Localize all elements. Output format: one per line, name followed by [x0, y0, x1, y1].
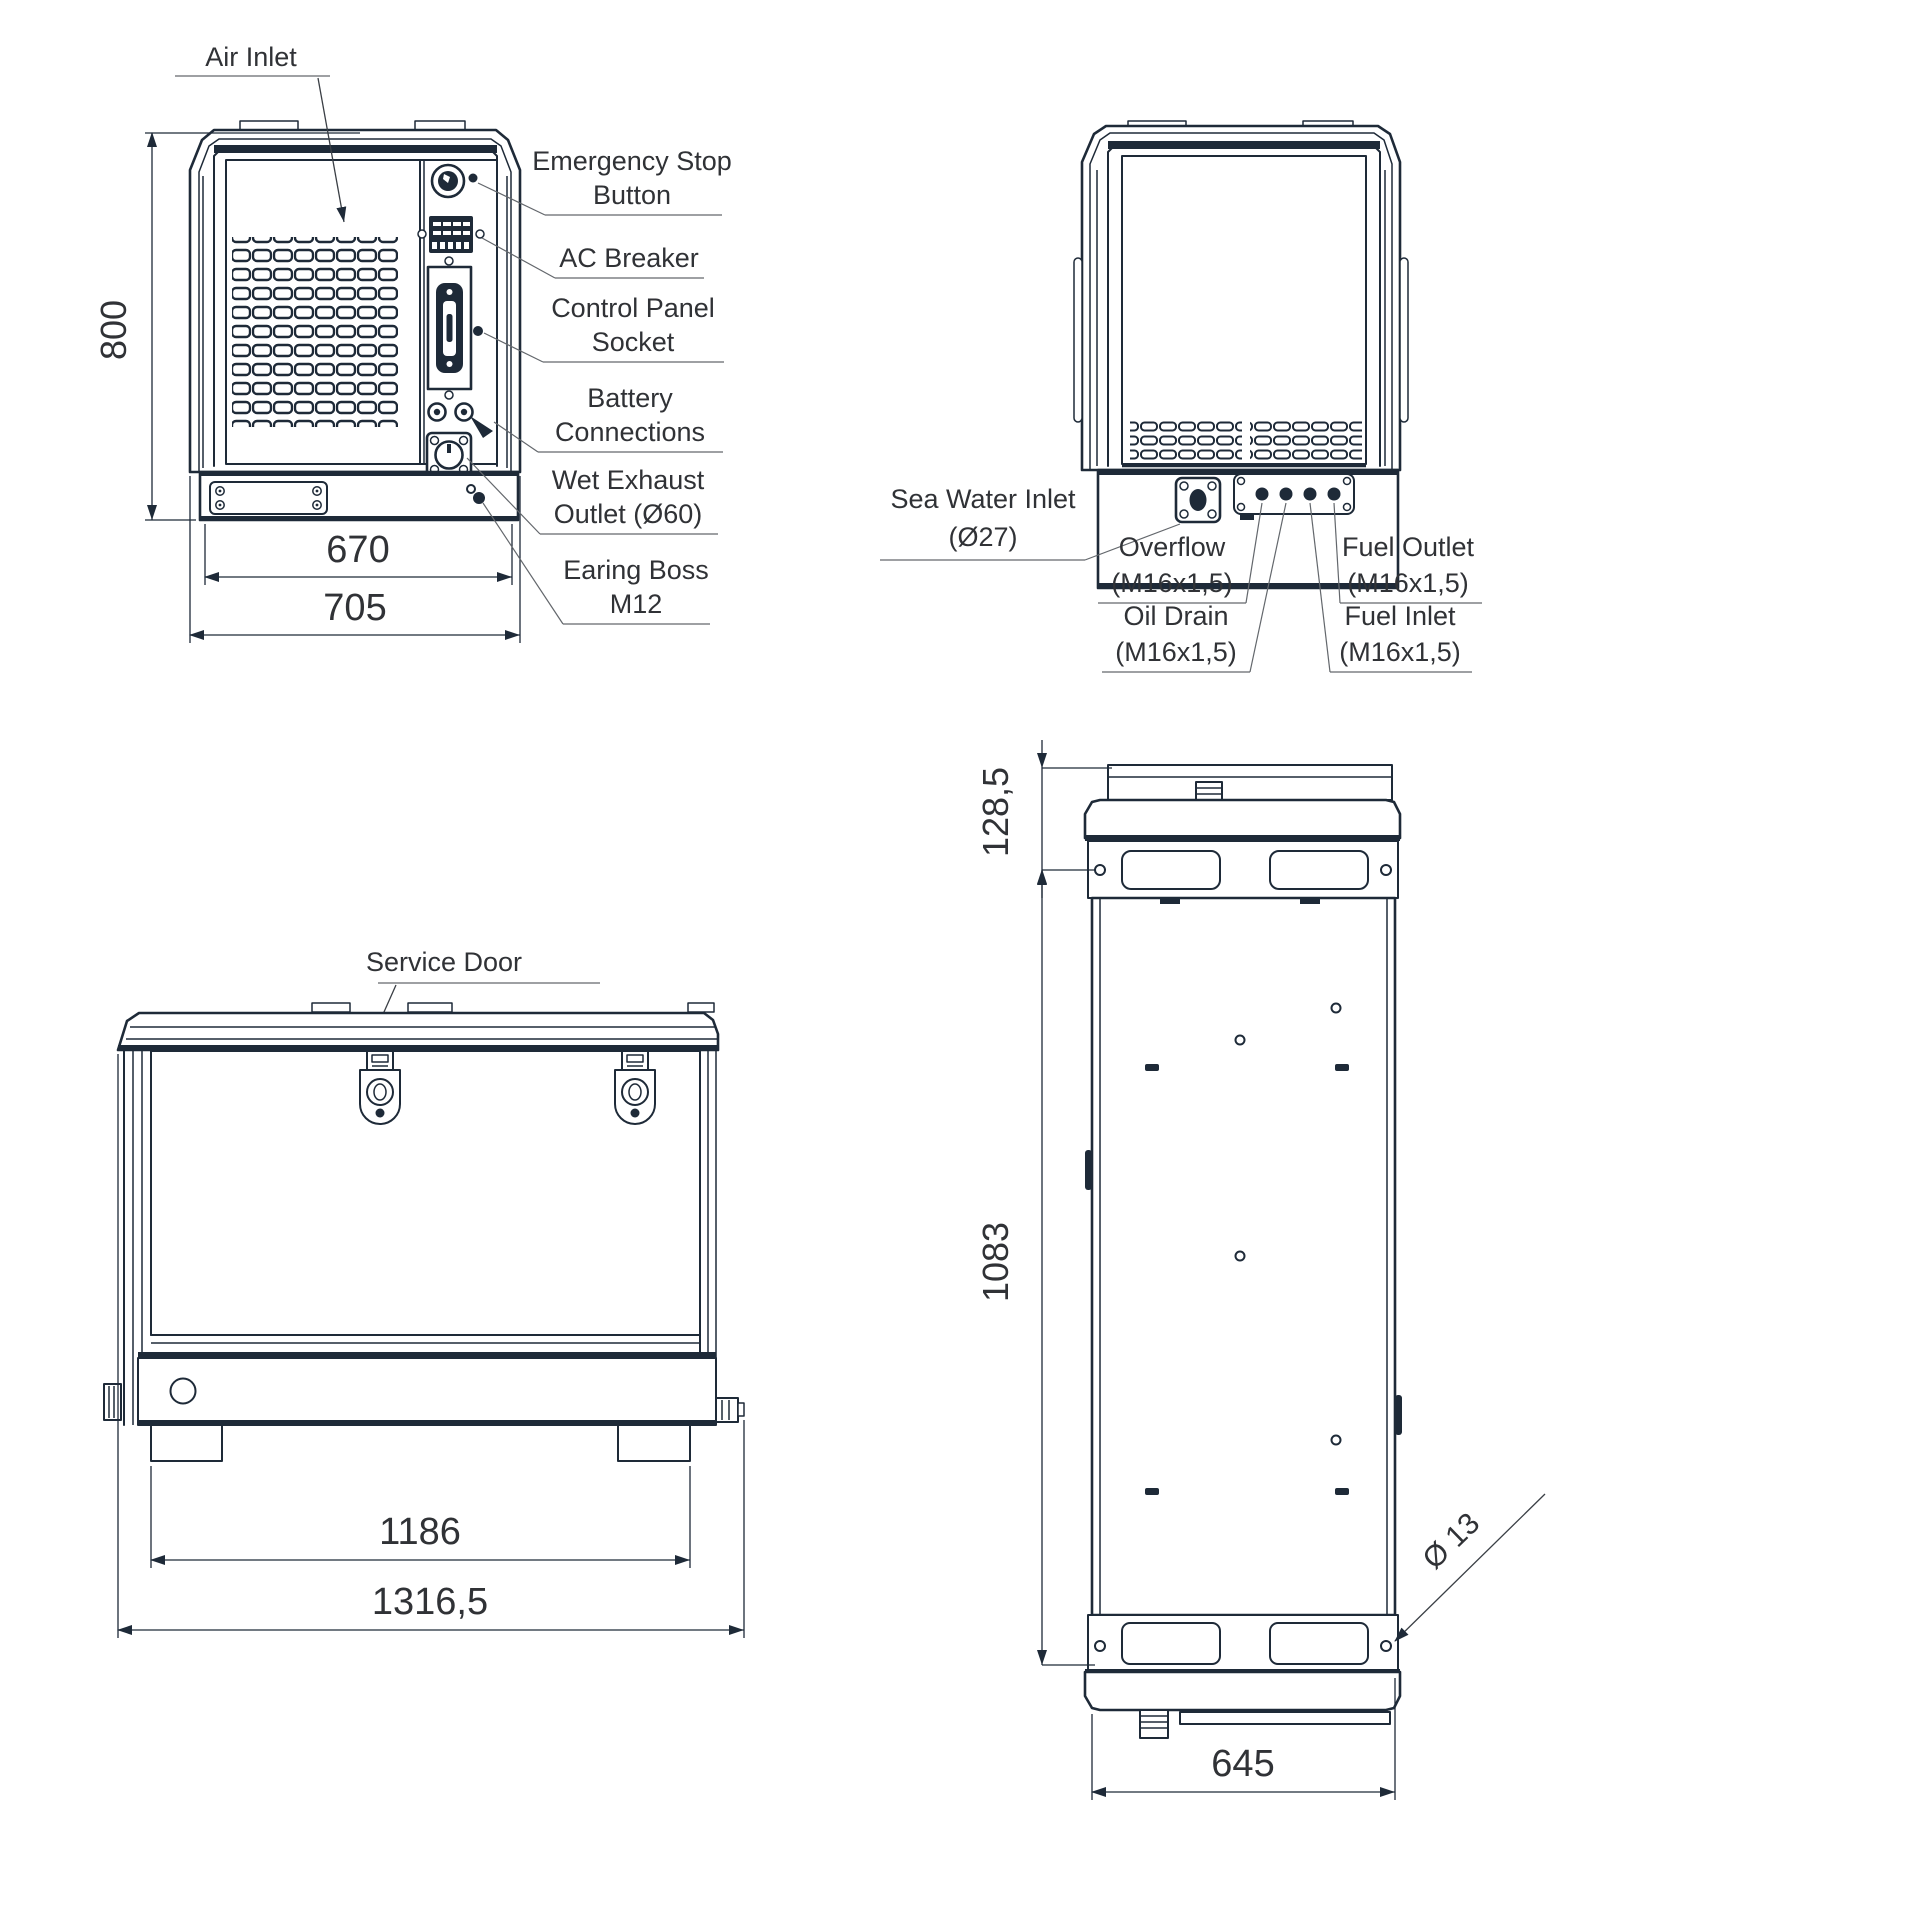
svg-text:Wet Exhaust: Wet Exhaust: [552, 465, 705, 495]
side-foot: [151, 1425, 222, 1461]
overflow-port: [1256, 488, 1269, 501]
handle-cutout: [1270, 851, 1368, 889]
side-base: [138, 1358, 716, 1425]
front-top-tab: [415, 121, 465, 130]
door-latch: [360, 1051, 400, 1124]
svg-text:(M16x1,5): (M16x1,5): [1111, 568, 1233, 598]
front-top-tab: [240, 121, 298, 130]
dim-label-d13: Ø 13: [1417, 1507, 1487, 1576]
top-body: [1085, 898, 1402, 1615]
svg-text:Earing Boss: Earing Boss: [563, 555, 709, 585]
back-enclosure-outline: [1082, 126, 1400, 470]
bottom-bar: [1180, 1712, 1390, 1724]
callout-battery-connections: Battery Connections: [494, 383, 723, 452]
top-rear-bar: [1108, 765, 1392, 800]
dim-inner-width-670: 670: [205, 524, 512, 585]
svg-text:(M16x1,5): (M16x1,5): [1339, 637, 1461, 667]
side-view: Service Door: [104, 947, 744, 1638]
svg-text:Fuel Inlet: Fuel Inlet: [1344, 601, 1456, 631]
dim-label-800: 800: [93, 300, 134, 360]
svg-text:Fuel Outlet: Fuel Outlet: [1342, 532, 1475, 562]
svg-text:Socket: Socket: [592, 327, 675, 357]
callout-hole-d13: Ø 13: [1395, 1494, 1545, 1641]
front-base: [200, 472, 518, 520]
svg-text:(M16x1,5): (M16x1,5): [1347, 568, 1469, 598]
svg-text:M12: M12: [610, 589, 663, 619]
svg-text:Sea Water Inlet: Sea Water Inlet: [890, 484, 1076, 514]
handle-cutout: [1122, 851, 1220, 889]
svg-text:Battery: Battery: [587, 383, 673, 413]
fuel-connection-plate: [1234, 474, 1354, 520]
svg-text:Service Door: Service Door: [366, 947, 522, 977]
top-grille-rail: [1088, 1615, 1398, 1672]
dim-label-128-5: 128,5: [975, 767, 1016, 857]
svg-text:(Ø27): (Ø27): [948, 522, 1017, 552]
back-view: Sea Water Inlet (Ø27) Overflow (M16x1,5)…: [880, 121, 1482, 672]
svg-text:Oil Drain: Oil Drain: [1123, 601, 1228, 631]
mount-slot: [1145, 1064, 1159, 1071]
dim-feet-width-1186: 1186: [151, 1466, 690, 1568]
wet-exhaust-outlet: [427, 433, 471, 477]
air-inlet-grille: [232, 237, 398, 427]
technical-drawing: 800 670 705 Air Inlet Emergency Stop But…: [0, 0, 1920, 1910]
svg-text:Emergency Stop: Emergency Stop: [532, 146, 732, 176]
svg-text:Connections: Connections: [555, 417, 705, 447]
bottom-stud: [1140, 1710, 1168, 1738]
dim-label-645: 645: [1211, 1743, 1274, 1785]
dim-label-1316-5: 1316,5: [372, 1581, 488, 1623]
svg-text:AC Breaker: AC Breaker: [559, 243, 699, 273]
mount-slot: [1145, 1488, 1159, 1495]
side-right-fitting: [716, 1398, 744, 1422]
back-grille: [1250, 420, 1362, 462]
front-view: 800 670 705 Air Inlet Emergency Stop But…: [93, 42, 732, 643]
svg-text:Overflow: Overflow: [1119, 532, 1226, 562]
oil-drain-port: [1280, 488, 1293, 501]
back-grille: [1130, 420, 1242, 462]
mount-slot: [1335, 1064, 1349, 1071]
svg-text:Outlet (Ø60): Outlet (Ø60): [554, 499, 703, 529]
air-inlet-label: Air Inlet: [205, 42, 297, 72]
svg-text:Control Panel: Control Panel: [551, 293, 715, 323]
svg-text:Button: Button: [593, 180, 671, 210]
top-cap: [1085, 800, 1400, 838]
svg-text:(M16x1,5): (M16x1,5): [1115, 637, 1237, 667]
dim-label-1186: 1186: [379, 1511, 461, 1553]
dim-body-length-1083: 1083: [975, 870, 1095, 1665]
fuel-inlet-port: [1304, 488, 1317, 501]
dim-label-1083: 1083: [975, 1222, 1016, 1302]
fuel-outlet-port: [1328, 488, 1341, 501]
side-foot: [618, 1425, 690, 1461]
dim-label-705: 705: [323, 587, 386, 629]
top-view: 128,5 1083 645 Ø 13: [975, 740, 1545, 1800]
sea-water-inlet: [1176, 478, 1220, 522]
top-bottom-cap: [1085, 1672, 1400, 1710]
side-top-cap: [118, 1013, 718, 1050]
mount-slot: [1335, 1488, 1349, 1495]
dim-label-670: 670: [326, 529, 389, 571]
drawing-page: 800 670 705 Air Inlet Emergency Stop But…: [0, 0, 1920, 1910]
door-latch: [615, 1051, 655, 1124]
base-mounting-plate: [210, 482, 327, 514]
top-handle-rail: [1088, 841, 1398, 898]
